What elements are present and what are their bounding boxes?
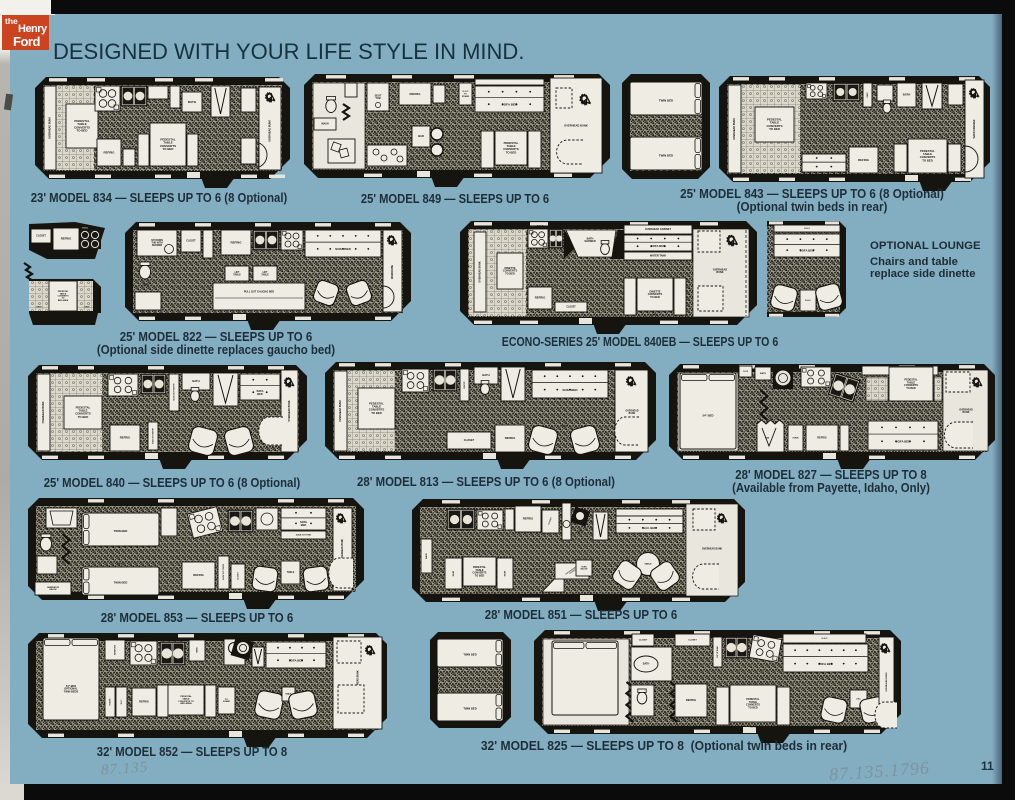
svg-text:SLIDE OUT PANTRY: SLIDE OUT PANTRY: [172, 383, 175, 401]
svg-text:B.H.C: B.H.C: [900, 454, 906, 456]
svg-text:REFRIG: REFRIG: [505, 436, 516, 440]
svg-text:REFRIG: REFRIG: [139, 700, 149, 704]
svg-text:TUB: TUB: [375, 96, 380, 100]
svg-text:TO BED: TO BED: [505, 272, 515, 276]
svg-text:TABLE: TABLE: [644, 563, 652, 566]
svg-text:REFRIG: REFRIG: [858, 158, 870, 162]
svg-text:REFRIG: REFRIG: [523, 517, 534, 521]
svg-text:BUNK: BUNK: [963, 411, 970, 414]
svg-text:BED: BED: [257, 392, 263, 396]
svg-text:OVERHEAD BUNK: OVERHEAD BUNK: [733, 118, 736, 140]
svg-text:OVERHEAD BUNK: OVERHEAD BUNK: [341, 539, 344, 560]
svg-text:BATH: BATH: [143, 284, 150, 287]
svg-text:TO BED: TO BED: [922, 158, 933, 162]
svg-text:BATH: BATH: [903, 93, 911, 97]
svg-text:O.H.C: O.H.C: [508, 168, 515, 171]
svg-text:FURN: FURN: [793, 438, 799, 440]
svg-text:SLIDE OUT PANTRY: SLIDE OUT PANTRY: [151, 427, 154, 444]
svg-text:TWIN BED: TWIN BED: [114, 581, 128, 585]
svg-text:STAND: STAND: [462, 95, 470, 98]
svg-text:BATH: BATH: [577, 531, 584, 534]
svg-text:SOFA BED: SOFA BED: [562, 388, 578, 392]
svg-text:WARDROBE: WARDROBE: [113, 644, 116, 655]
svg-text:TABLE: TABLE: [261, 273, 269, 276]
svg-text:O.H.C: O.H.C: [117, 564, 123, 566]
svg-text:D.H.C: D.H.C: [652, 315, 659, 317]
svg-text:SOFA BED: SOFA BED: [651, 244, 665, 248]
svg-text:SEAT: SEAT: [504, 570, 507, 576]
svg-text:O.H.C: O.H.C: [287, 590, 293, 592]
svg-text:BED AREA: BED AREA: [58, 299, 69, 302]
svg-text:SEAT: SEAT: [36, 306, 42, 309]
svg-text:O.H.C: O.H.C: [340, 314, 347, 316]
svg-text:SOFA BED: SOFA BED: [502, 103, 518, 107]
svg-text:OVERHEAD: OVERHEAD: [625, 409, 638, 412]
svg-text:BED: BED: [301, 523, 307, 527]
svg-text:WATER TANK: WATER TANK: [650, 255, 666, 258]
svg-text:O.H.C: O.H.C: [165, 169, 172, 172]
svg-text:BUNK: BUNK: [629, 413, 636, 415]
svg-text:D.H.C: D.H.C: [805, 300, 811, 302]
svg-text:OVERHEAD CABINET: OVERHEAD CABINET: [645, 228, 671, 231]
svg-text:BUNK: BUNK: [716, 271, 723, 274]
svg-text:TO BED: TO BED: [769, 127, 780, 131]
svg-text:OVERHEAD BUNK: OVERHEAD BUNK: [339, 400, 342, 422]
svg-text:BAR: BAR: [418, 134, 424, 138]
svg-text:REFRIG: REFRIG: [104, 150, 116, 154]
svg-text:REFRIG: REFRIG: [193, 573, 204, 577]
svg-text:O.H.C: O.H.C: [82, 228, 88, 230]
svg-text:CLOSET: CLOSET: [566, 307, 576, 309]
svg-text:FLIP UP BUNK: FLIP UP BUNK: [717, 645, 719, 658]
svg-text:SEAT: SEAT: [84, 306, 90, 309]
svg-text:TABLE: TABLE: [287, 571, 295, 574]
svg-text:PULL OUT GAUCHO BED: PULL OUT GAUCHO BED: [244, 291, 274, 294]
svg-text:WARD DRESSER: WARD DRESSER: [973, 119, 976, 138]
svg-text:OVERHEAD BUNK: OVERHEAD BUNK: [288, 400, 291, 421]
svg-text:CLOS: CLOS: [743, 371, 749, 373]
svg-text:OVERHEAD BUNK: OVERHEAD BUNK: [564, 124, 588, 128]
svg-text:TUB: TUB: [59, 532, 64, 534]
svg-text:O.H.C: O.H.C: [256, 315, 263, 317]
svg-text:BATH: BATH: [188, 100, 197, 104]
svg-text:SHOWER: SHOWER: [152, 245, 163, 247]
svg-text:D.H.C: D.H.C: [286, 725, 292, 727]
svg-text:CLOSET: CLOSET: [639, 640, 648, 642]
svg-text:TWIN BED: TWIN BED: [659, 153, 673, 157]
svg-text:O.H.C: O.H.C: [750, 727, 756, 729]
svg-text:OVERHEAD BUNK: OVERHEAD BUNK: [42, 401, 45, 423]
svg-text:BELOW: BELOW: [581, 568, 588, 570]
svg-text:TUB: TUB: [765, 438, 770, 440]
svg-text:SHOWER: SHOWER: [584, 240, 595, 243]
svg-text:REFRIG: REFRIG: [817, 437, 827, 440]
svg-text:O.H.C: O.H.C: [804, 228, 810, 230]
svg-text:REFRIG: REFRIG: [231, 240, 243, 244]
svg-text:TWIN BEDS: TWIN BEDS: [64, 690, 79, 694]
svg-text:D.H.C: D.H.C: [84, 509, 90, 511]
svg-text:WARDROBE: WARDROBE: [391, 264, 394, 279]
svg-text:O.H.C: O.H.C: [315, 638, 321, 640]
svg-text:TWIN BED: TWIN BED: [659, 98, 673, 102]
svg-text:D.H.C: D.H.C: [121, 699, 123, 704]
svg-text:O.H.C: O.H.C: [821, 638, 827, 640]
svg-text:OVERHEAD BUNK: OVERHEAD BUNK: [479, 261, 482, 282]
svg-text:O.H.C: O.H.C: [476, 592, 482, 594]
svg-text:CHAIR: CHAIR: [313, 560, 320, 563]
svg-text:TO BED: TO BED: [475, 574, 485, 577]
svg-text:REFRIG: REFRIG: [410, 92, 422, 96]
svg-text:BATH: BATH: [482, 373, 489, 377]
svg-text:O.H.C: O.H.C: [537, 226, 544, 228]
svg-text:STAND: STAND: [223, 700, 231, 703]
svg-text:TO BED: TO BED: [506, 150, 517, 154]
svg-text:OVERHEAD BUNK: OVERHEAD BUNK: [269, 120, 272, 142]
svg-text:SLIDE OUT TRAYS: SLIDE OUT TRAYS: [222, 563, 225, 580]
svg-text:O.H.C: O.H.C: [183, 720, 189, 722]
svg-text:BATH: BATH: [192, 379, 199, 383]
svg-text:PANTRY: PANTRY: [463, 381, 466, 389]
svg-text:O.H.C: O.H.C: [408, 159, 415, 162]
svg-text:REFRIG: REFRIG: [61, 237, 72, 241]
svg-text:OVERHEAD BUNK: OVERHEAD BUNK: [885, 672, 888, 692]
svg-text:BELOW: BELOW: [49, 589, 56, 591]
svg-text:CLOSET: CLOSET: [688, 640, 697, 642]
svg-text:54" BED: 54" BED: [702, 414, 713, 418]
svg-text:CLOSET: CLOSET: [464, 438, 475, 442]
svg-text:CHAIR: CHAIR: [262, 560, 269, 563]
svg-text:TWIN BED: TWIN BED: [463, 707, 476, 711]
svg-text:WARD: WARD: [425, 552, 428, 559]
svg-text:WARD: WARD: [195, 647, 198, 653]
svg-text:B.H.C: B.H.C: [562, 426, 569, 428]
svg-text:PANT: PANT: [866, 92, 869, 98]
svg-text:GAU. BED: GAU. BED: [643, 526, 656, 530]
svg-text:CLOSET: CLOSET: [36, 235, 46, 238]
svg-text:B.H.C: B.H.C: [218, 429, 225, 431]
svg-text:TO BED: TO BED: [906, 387, 916, 390]
svg-text:BATH: BATH: [643, 663, 650, 666]
svg-text:TO BED: TO BED: [78, 415, 89, 419]
svg-text:TO BED: TO BED: [650, 295, 660, 299]
svg-text:SOFA BED: SOFA BED: [818, 662, 833, 666]
svg-text:SEAT: SEAT: [452, 570, 455, 576]
svg-text:BATH: BATH: [760, 372, 766, 375]
svg-text:OVERHEAD BUNK: OVERHEAD BUNK: [49, 117, 52, 139]
svg-text:BED AREA: BED AREA: [180, 702, 192, 705]
svg-text:TO BED: TO BED: [371, 411, 382, 415]
svg-text:REFRIG: REFRIG: [120, 436, 131, 440]
svg-text:TWIN BED: TWIN BED: [463, 653, 476, 657]
svg-text:O&C: O&C: [856, 699, 861, 701]
svg-text:SOFA BED: SOFA BED: [335, 247, 351, 251]
svg-text:CLOSET: CLOSET: [238, 571, 240, 580]
svg-text:TO BED: TO BED: [163, 147, 174, 151]
svg-text:SOFA BED: SOFA BED: [896, 440, 911, 444]
svg-text:REFRIG: REFRIG: [686, 698, 696, 702]
svg-text:D.H.C: D.H.C: [642, 592, 648, 594]
svg-text:REFRIG: REFRIG: [535, 296, 546, 300]
svg-text:O.H.C: O.H.C: [436, 506, 442, 508]
svg-text:SOFA BED: SOFA BED: [289, 658, 303, 662]
svg-text:SOFA BED: SOFA BED: [800, 248, 814, 252]
svg-text:HEATER: HEATER: [108, 698, 111, 706]
svg-text:WASH: WASH: [321, 123, 328, 126]
svg-text:TO BED: TO BED: [748, 706, 758, 709]
svg-text:TO BED: TO BED: [77, 129, 88, 133]
svg-text:TWIN BED: TWIN BED: [114, 529, 128, 533]
svg-text:O.H.C: O.H.C: [139, 637, 145, 639]
svg-text:SLIDE OUT TRAY: SLIDE OUT TRAY: [296, 534, 312, 537]
svg-text:TABLE: TABLE: [233, 273, 241, 276]
svg-text:CLOSET: CLOSET: [186, 241, 196, 243]
svg-text:OVERHEAD BUNK: OVERHEAD BUNK: [702, 548, 723, 551]
